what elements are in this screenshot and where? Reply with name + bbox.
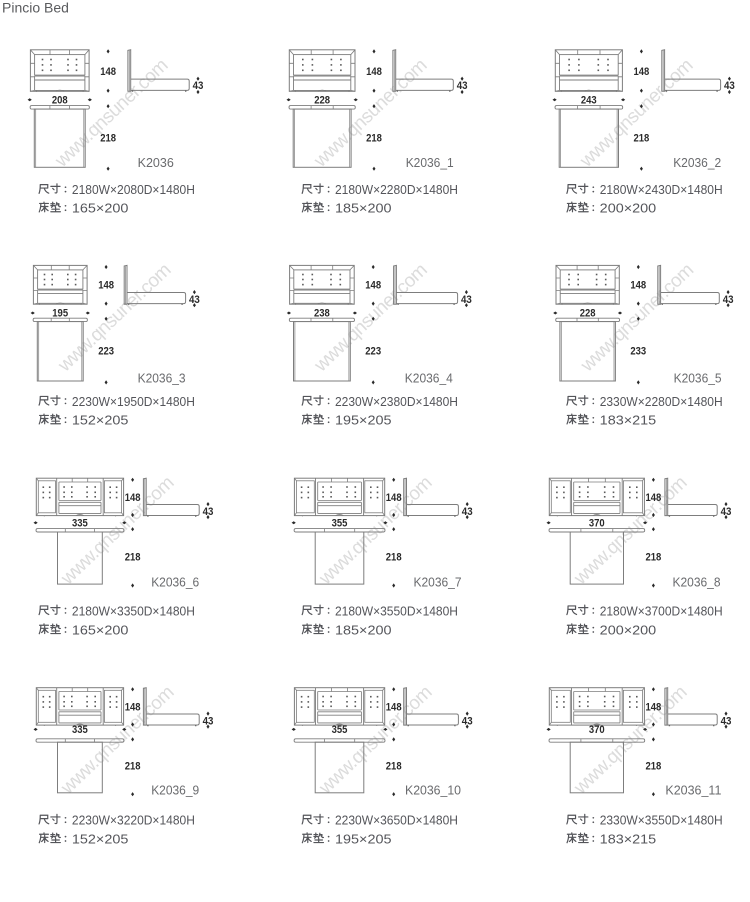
svg-text:148: 148 bbox=[386, 702, 402, 714]
svg-text:148: 148 bbox=[100, 66, 116, 78]
svg-text:165×200: 165×200 bbox=[72, 201, 128, 216]
svg-text:2180W×2080D×1480H: 2180W×2080D×1480H bbox=[72, 182, 195, 197]
svg-text:K2036_10: K2036_10 bbox=[405, 783, 461, 797]
svg-text:218: 218 bbox=[125, 760, 141, 772]
svg-text:148: 148 bbox=[366, 66, 382, 78]
svg-text:148: 148 bbox=[646, 492, 662, 504]
svg-text:148: 148 bbox=[634, 66, 650, 78]
svg-text:223: 223 bbox=[365, 345, 381, 357]
svg-text:200×200: 200×200 bbox=[600, 622, 657, 637]
svg-text:43: 43 bbox=[457, 80, 468, 92]
svg-text:2330W×2280D×1480H: 2330W×2280D×1480H bbox=[600, 394, 723, 409]
svg-text:2230W×1950D×1480H: 2230W×1950D×1480H bbox=[72, 394, 195, 409]
svg-text:148: 148 bbox=[365, 279, 381, 291]
svg-text:K2036_4: K2036_4 bbox=[405, 372, 453, 386]
svg-text:43: 43 bbox=[723, 294, 734, 306]
svg-text:370: 370 bbox=[589, 724, 605, 736]
svg-text:43: 43 bbox=[721, 506, 732, 518]
svg-text:Pincio Bed: Pincio Bed bbox=[2, 0, 69, 16]
svg-text:355: 355 bbox=[332, 724, 348, 736]
svg-text:K2036_5: K2036_5 bbox=[674, 372, 722, 386]
svg-text:2230W×2380D×1480H: 2230W×2380D×1480H bbox=[335, 394, 458, 409]
svg-text:183×215: 183×215 bbox=[600, 413, 657, 428]
svg-text:228: 228 bbox=[314, 94, 330, 106]
svg-text:218: 218 bbox=[634, 132, 650, 144]
svg-text:2180W×3350D×1480H: 2180W×3350D×1480H bbox=[72, 603, 195, 618]
svg-text:148: 148 bbox=[630, 279, 646, 291]
svg-text:335: 335 bbox=[72, 517, 88, 529]
svg-text:335: 335 bbox=[72, 724, 88, 736]
svg-text:148: 148 bbox=[386, 492, 402, 504]
svg-text:148: 148 bbox=[646, 702, 662, 714]
svg-text:152×205: 152×205 bbox=[72, 831, 128, 846]
svg-text:218: 218 bbox=[366, 132, 382, 144]
svg-text:43: 43 bbox=[193, 80, 204, 92]
svg-text:218: 218 bbox=[386, 760, 402, 772]
svg-text:165×200: 165×200 bbox=[72, 622, 128, 637]
svg-text:2180W×3550D×1480H: 2180W×3550D×1480H bbox=[335, 603, 458, 618]
svg-text:370: 370 bbox=[589, 517, 605, 529]
svg-text:148: 148 bbox=[125, 702, 141, 714]
svg-text:148: 148 bbox=[98, 279, 114, 291]
svg-text:K2036_9: K2036_9 bbox=[151, 783, 199, 797]
svg-text:43: 43 bbox=[462, 506, 473, 518]
svg-text:K2036_8: K2036_8 bbox=[673, 575, 721, 589]
svg-text:43: 43 bbox=[189, 294, 200, 306]
svg-text:43: 43 bbox=[203, 506, 214, 518]
svg-text:K2036_11: K2036_11 bbox=[665, 783, 721, 797]
svg-text:200×200: 200×200 bbox=[600, 201, 657, 216]
svg-text:43: 43 bbox=[461, 294, 472, 306]
svg-text:218: 218 bbox=[646, 552, 662, 564]
svg-text:148: 148 bbox=[125, 492, 141, 504]
svg-text:152×205: 152×205 bbox=[72, 413, 128, 428]
svg-text:208: 208 bbox=[52, 94, 68, 106]
svg-text:218: 218 bbox=[100, 132, 116, 144]
svg-text:2230W×3220D×1480H: 2230W×3220D×1480H bbox=[72, 813, 195, 828]
svg-text:K2036_1: K2036_1 bbox=[406, 156, 454, 170]
svg-text:2180W×3700D×1480H: 2180W×3700D×1480H bbox=[600, 603, 723, 618]
svg-text:218: 218 bbox=[125, 552, 141, 564]
svg-text:195×205: 195×205 bbox=[335, 413, 392, 428]
svg-text:185×200: 185×200 bbox=[335, 622, 392, 637]
svg-text:K2036_3: K2036_3 bbox=[138, 372, 186, 386]
svg-text:43: 43 bbox=[721, 715, 732, 727]
svg-text:2330W×3550D×1480H: 2330W×3550D×1480H bbox=[600, 813, 723, 828]
svg-text:218: 218 bbox=[386, 552, 402, 564]
svg-text:195×205: 195×205 bbox=[335, 831, 392, 846]
svg-text:218: 218 bbox=[646, 760, 662, 772]
svg-text:K2036_2: K2036_2 bbox=[673, 156, 721, 170]
svg-text:K2036_6: K2036_6 bbox=[151, 575, 199, 589]
svg-text:355: 355 bbox=[332, 517, 348, 529]
svg-text:223: 223 bbox=[98, 345, 114, 357]
svg-text:183×215: 183×215 bbox=[600, 831, 657, 846]
svg-text:2180W×2280D×1480H: 2180W×2280D×1480H bbox=[335, 182, 458, 197]
svg-text:233: 233 bbox=[630, 345, 646, 357]
svg-text:K2036: K2036 bbox=[138, 156, 174, 170]
svg-text:43: 43 bbox=[724, 80, 735, 92]
svg-text:185×200: 185×200 bbox=[335, 201, 392, 216]
svg-text:2230W×3650D×1480H: 2230W×3650D×1480H bbox=[335, 813, 458, 828]
svg-text:43: 43 bbox=[203, 715, 214, 727]
svg-text:K2036_7: K2036_7 bbox=[414, 575, 462, 589]
svg-text:243: 243 bbox=[581, 94, 597, 106]
svg-text:2180W×2430D×1480H: 2180W×2430D×1480H bbox=[600, 182, 723, 197]
svg-text:43: 43 bbox=[462, 715, 473, 727]
